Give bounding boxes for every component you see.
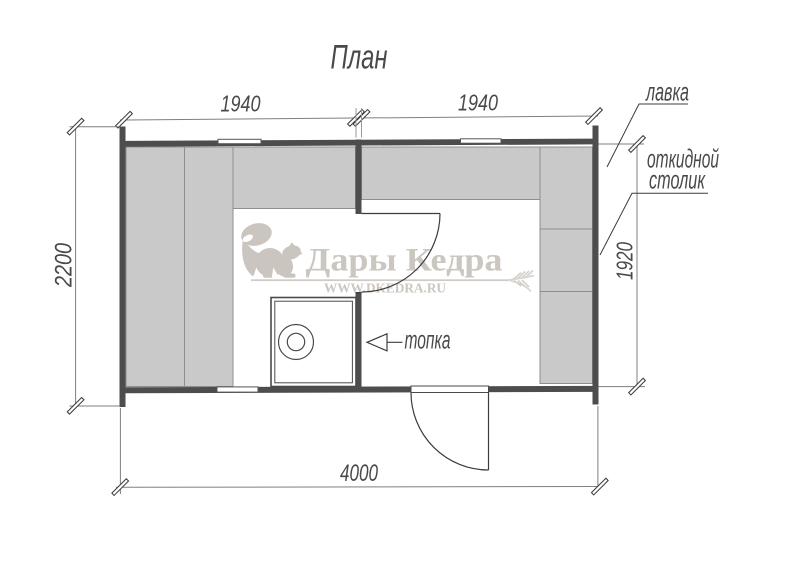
svg-text:1940: 1940 bbox=[221, 91, 261, 117]
svg-text:лавка: лавка bbox=[645, 77, 689, 107]
svg-text:План: План bbox=[331, 39, 388, 77]
svg-text:Дары Кедра: Дары Кедра bbox=[306, 243, 503, 279]
svg-text:1920: 1920 bbox=[612, 242, 638, 280]
svg-text:4000: 4000 bbox=[340, 460, 378, 487]
svg-text:топка: топка bbox=[405, 325, 451, 355]
svg-text:2200: 2200 bbox=[51, 242, 78, 287]
svg-text:столик: столик bbox=[649, 165, 706, 195]
svg-text:1940: 1940 bbox=[458, 90, 498, 116]
